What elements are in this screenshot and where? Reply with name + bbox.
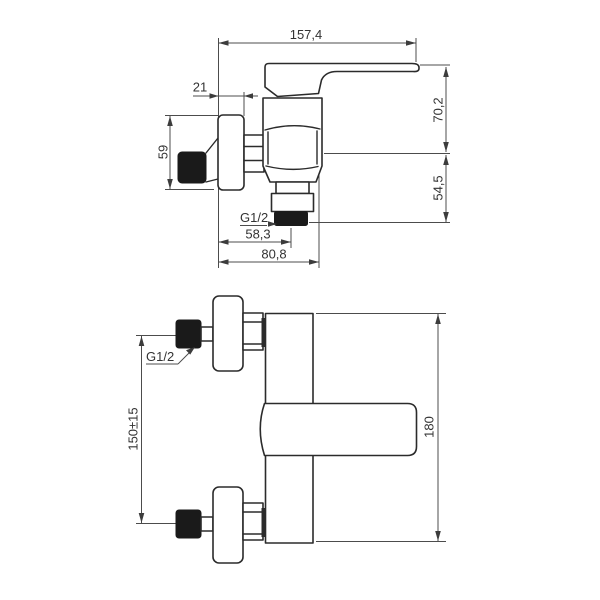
side-union-nut — [244, 135, 264, 172]
dim-label-height-upper: 70,2 — [431, 97, 446, 122]
side-outlet-thread — [275, 212, 308, 226]
dim-label-outlet-offset: 58,3 — [245, 227, 270, 242]
side-inlet-cone-top — [206, 138, 218, 153]
front-view: 150±15 180 — [126, 296, 447, 563]
side-view: 157,4 21 59 70,2 — [156, 27, 451, 268]
dim-label-total-length: 157,4 — [290, 27, 323, 42]
front-bottom-stem — [201, 517, 213, 531]
side-outlet-neck — [276, 182, 309, 194]
front-top-inlet-fitting — [176, 320, 201, 348]
side-thread-label: G1/2 — [240, 210, 268, 225]
front-lever-handle — [260, 404, 416, 456]
front-bottom-inlet-fitting — [176, 510, 201, 538]
dim-label-rosette-size: 59 — [156, 145, 171, 159]
side-outlet-collar — [272, 194, 314, 212]
dim-label-depth-total: 80,8 — [261, 247, 286, 262]
front-thread-label: G1/2 — [146, 349, 174, 364]
side-inlet-cone-bottom — [206, 179, 218, 182]
dim-label-body-height: 180 — [422, 416, 437, 438]
technical-drawing: 157,4 21 59 70,2 — [0, 0, 600, 600]
front-top-connection — [176, 296, 266, 371]
side-view-parts — [178, 64, 419, 226]
front-top-stem — [201, 327, 213, 341]
side-lever-handle — [265, 64, 419, 97]
dim-label-wall-to-rosette: 21 — [193, 80, 207, 95]
dim-total-length: 157,4 — [219, 27, 417, 62]
drawing-page: 157,4 21 59 70,2 — [0, 0, 600, 600]
side-thread-callout: G1/2 — [240, 210, 277, 227]
side-rosette — [218, 115, 244, 190]
front-bottom-connection — [176, 487, 266, 563]
dim-outlet-offset: 58,3 — [219, 227, 292, 249]
dim-wall-to-rosette: 21 — [193, 80, 258, 117]
front-thread-callout: G1/2 — [146, 347, 195, 364]
side-inlet-fitting — [178, 152, 206, 183]
dim-height-lower: 54,5 — [309, 155, 450, 223]
dim-height-upper: 70,2 — [324, 65, 450, 154]
dim-label-height-lower: 54,5 — [431, 175, 446, 200]
front-top-rosette — [213, 296, 243, 371]
front-bottom-rosette — [213, 487, 243, 563]
dim-label-inlet-distance: 150±15 — [126, 407, 141, 450]
